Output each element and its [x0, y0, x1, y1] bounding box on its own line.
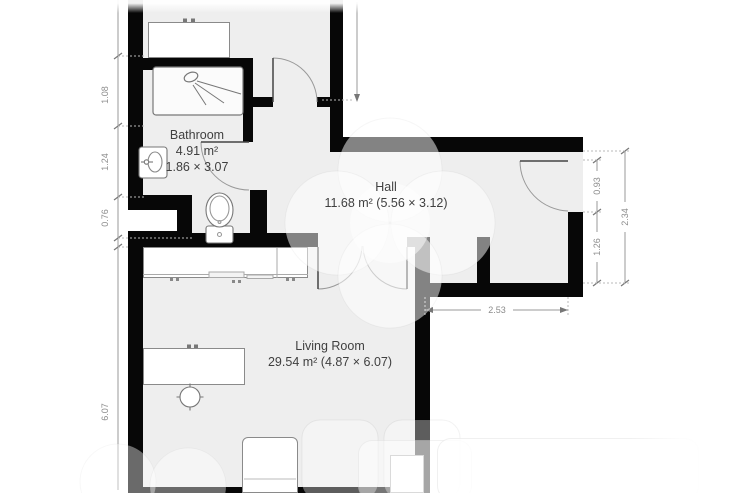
- living-room-details: 29.54 m² (4.87 × 6.07): [250, 354, 410, 370]
- watermark: [0, 0, 740, 493]
- living-room-label-block: Living Room 29.54 m² (4.87 × 6.07): [250, 338, 410, 370]
- watermark-top-fade: [0, 0, 740, 13]
- watermark-right-fade: [630, 0, 740, 493]
- living-room-name: Living Room: [250, 338, 410, 354]
- bathroom-area: 4.91 m²: [137, 143, 257, 159]
- floor-plan: 1.08 1.24 0.76 6.07 0.93 1.26 2.34 2.53: [0, 0, 740, 493]
- hall-details: 11.68 m² (5.56 × 3.12): [306, 195, 466, 211]
- hall-label-block: Hall 11.68 m² (5.56 × 3.12): [306, 179, 466, 211]
- bathroom-label-block: Bathroom 4.91 m² 1.86 × 3.07: [137, 127, 257, 175]
- bathroom-name: Bathroom: [137, 127, 257, 143]
- bathroom-size: 1.86 × 3.07: [137, 159, 257, 175]
- hall-name: Hall: [306, 179, 466, 195]
